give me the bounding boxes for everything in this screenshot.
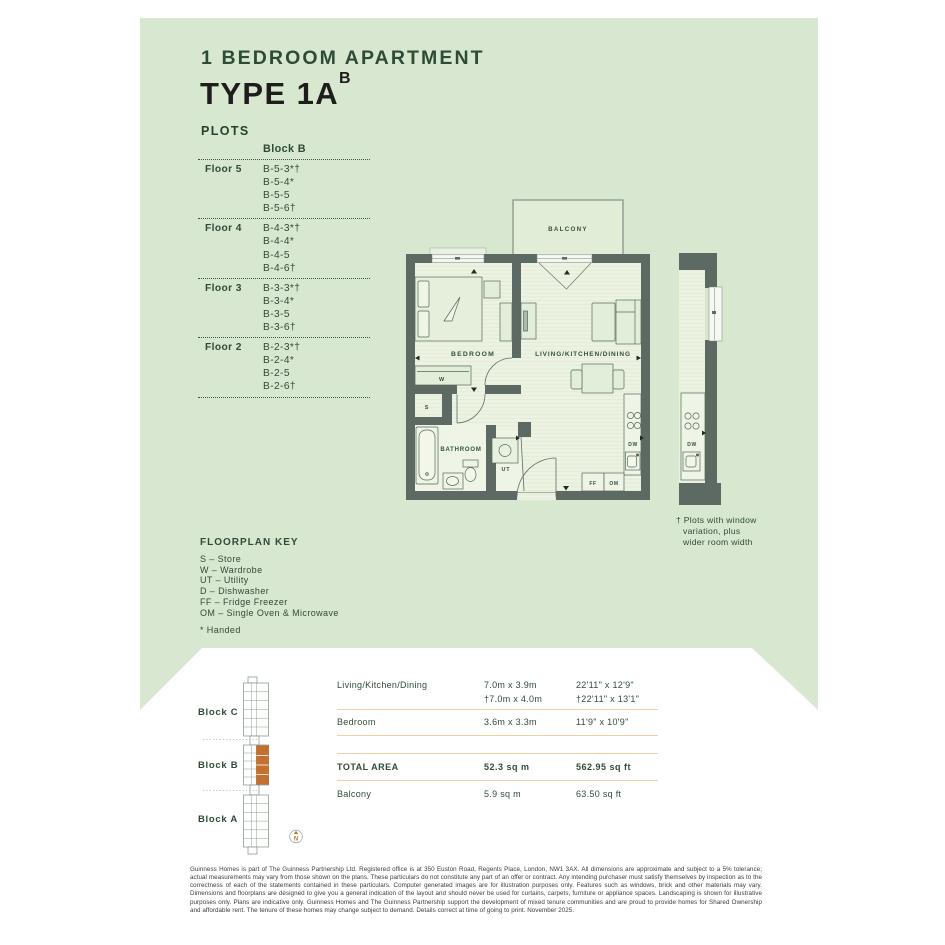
key-item: UT – Utility <box>200 575 339 586</box>
total-area-imperial: 562.95 sq ft <box>576 760 658 774</box>
dishwasher-label: DW <box>628 442 638 448</box>
living-label: LIVING/KITCHEN/DINING <box>535 351 631 358</box>
dotted-divider <box>198 278 370 279</box>
key-item: W – Wardrobe <box>200 565 339 576</box>
key-item: OM – Single Oven & Microwave <box>200 608 339 619</box>
floor-label: Floor 2 <box>198 341 263 393</box>
floorplan-key-items: S – Store W – Wardrobe UT – Utility D – … <box>200 554 339 618</box>
floor-group-2: Floor 2 B-2-3*† B-2-4* B-2-5 B-2-6† <box>198 339 370 395</box>
plot-list: B-2-3*† B-2-4* B-2-5 B-2-6† <box>263 341 300 393</box>
plot-number: B-4-5 <box>263 249 300 262</box>
fridge-freezer-label: FF <box>589 481 596 487</box>
plot-number: B-3-5 <box>263 308 300 321</box>
plot-number: B-4-3*† <box>263 222 300 235</box>
variation-note: † Plots with window variation, plus wide… <box>676 515 757 549</box>
utility-label: UT <box>502 467 511 473</box>
dimension-metric: 3.6m x 3.3m <box>484 715 576 729</box>
wardrobe-label: W <box>439 377 445 383</box>
balcony-label: BALCONY <box>548 226 588 233</box>
floor-group-4: Floor 4 B-4-3*† B-4-4* B-4-5 B-4-6† <box>198 220 370 276</box>
variation-note-line: variation, plus <box>676 526 757 537</box>
key-item: S – Store <box>200 554 339 565</box>
page-title: TYPE 1AB <box>200 76 351 112</box>
plot-number: B-2-5 <box>263 367 300 380</box>
dotted-divider <box>198 218 370 219</box>
table-spacer <box>337 736 658 754</box>
apartment-category-heading: 1 BEDROOM APARTMENT <box>201 47 485 70</box>
balcony-area: BALCONY <box>513 200 623 256</box>
window-reveal <box>430 248 486 255</box>
floor-group-3: Floor 3 B-3-3*† B-3-4* B-3-5 B-3-6† <box>198 280 370 336</box>
plot-number: B-2-4* <box>263 354 300 367</box>
dimensions-table: Living/Kitchen/Dining 7.0m x 3.9m †7.0m … <box>337 676 658 807</box>
oven-microwave-label: OM <box>609 481 618 487</box>
plot-number: B-5-4* <box>263 176 300 189</box>
dimension-imperial: 11'9" x 10'9" <box>576 715 658 729</box>
bedroom-window <box>432 255 484 262</box>
variation-note-line: † Plots with window <box>676 515 757 526</box>
block-b-label: Block B <box>198 760 238 771</box>
page-title-text: TYPE 1A <box>200 76 339 111</box>
key-item: FF – Fridge Freezer <box>200 597 339 608</box>
imperial-line: †22'11" x 13'1" <box>576 692 658 706</box>
plot-list: B-5-3*† B-5-4* B-5-5 B-5-6† <box>263 163 300 215</box>
compass: N <box>290 830 303 843</box>
floorplan-key: FLOORPLAN KEY S – Store W – Wardrobe UT … <box>200 537 339 635</box>
dimension-imperial: 22'11" x 12'9" †22'11" x 13'1" <box>576 678 658 706</box>
block-c-label: Block C <box>198 707 238 718</box>
dimension-row-bedroom: Bedroom 3.6m x 3.3m 11'9" x 10'9" <box>337 710 658 736</box>
floor-group-5: Floor 5 B-5-3*† B-5-4* B-5-5 B-5-6† <box>198 161 370 217</box>
total-area-metric: 52.3 sq m <box>484 760 576 774</box>
page-title-superscript: B <box>339 70 351 87</box>
plot-number: B-2-6† <box>263 380 300 393</box>
plot-list: B-3-3*† B-3-4* B-3-5 B-3-6† <box>263 282 300 334</box>
handed-note: * Handed <box>200 625 339 635</box>
dishwasher-variant-label: DW <box>687 442 697 448</box>
plots-block-header: Block B <box>198 143 370 158</box>
imperial-line: 22'11" x 12'9" <box>576 678 658 692</box>
floor-label: Floor 4 <box>198 222 263 274</box>
dimension-row-living: Living/Kitchen/Dining 7.0m x 3.9m †7.0m … <box>337 676 658 710</box>
dimension-room: Living/Kitchen/Dining <box>337 678 484 706</box>
plot-number: B-5-5 <box>263 189 300 202</box>
floorplan-drawing: BALCONY <box>395 190 735 512</box>
brochure-page: 1 BEDROOM APARTMENT TYPE 1AB PLOTS Block… <box>0 0 945 945</box>
bedroom-label: BEDROOM <box>451 351 495 358</box>
balcony-label: Balcony <box>337 787 484 801</box>
utility-closet <box>492 438 518 463</box>
plots-heading: PLOTS <box>201 124 250 138</box>
block-a-label: Block A <box>198 814 238 825</box>
plot-number: B-3-6† <box>263 321 300 334</box>
floor-label: Floor 5 <box>198 163 263 215</box>
plot-number: B-2-3*† <box>263 341 300 354</box>
plot-number: B-5-6† <box>263 202 300 215</box>
key-item: D – Dishwasher <box>200 586 339 597</box>
legal-disclaimer: Guinness Homes is part of The Guinness P… <box>190 866 762 915</box>
total-area-label: TOTAL AREA <box>337 760 484 774</box>
balcony-imperial: 63.50 sq ft <box>576 787 658 801</box>
balcony-area-row: Balcony 5.9 sq m 63.50 sq ft <box>337 781 658 807</box>
dotted-divider <box>198 337 370 338</box>
floorplan-key-heading: FLOORPLAN KEY <box>200 537 339 548</box>
highlighted-plots <box>257 746 269 784</box>
metric-line: 7.0m x 3.9m <box>484 678 576 692</box>
balcony-metric: 5.9 sq m <box>484 787 576 801</box>
metric-line: †7.0m x 4.0m <box>484 692 576 706</box>
bathroom-label: BATHROOM <box>440 447 481 453</box>
compass-north-label: N <box>294 837 298 843</box>
plot-number: B-4-6† <box>263 262 300 275</box>
plot-number: B-4-4* <box>263 235 300 248</box>
total-area-row: TOTAL AREA 52.3 sq m 562.95 sq ft <box>337 754 658 781</box>
floor-label: Floor 3 <box>198 282 263 334</box>
dimension-metric: 7.0m x 3.9m †7.0m x 4.0m <box>484 678 576 706</box>
plot-number: B-3-3*† <box>263 282 300 295</box>
plot-number: B-3-4* <box>263 295 300 308</box>
dimension-room: Bedroom <box>337 715 484 729</box>
variation-note-line: wider room width <box>676 537 757 548</box>
plot-number: B-5-3*† <box>263 163 300 176</box>
variant-fragment: DW <box>679 253 722 505</box>
store-label: S <box>425 405 429 411</box>
plots-table: Block B Floor 5 B-5-3*† B-5-4* B-5-5 B-5… <box>198 143 370 399</box>
plot-list: B-4-3*† B-4-4* B-4-5 B-4-6† <box>263 222 300 274</box>
dotted-divider <box>198 397 370 398</box>
dotted-divider <box>198 159 370 160</box>
